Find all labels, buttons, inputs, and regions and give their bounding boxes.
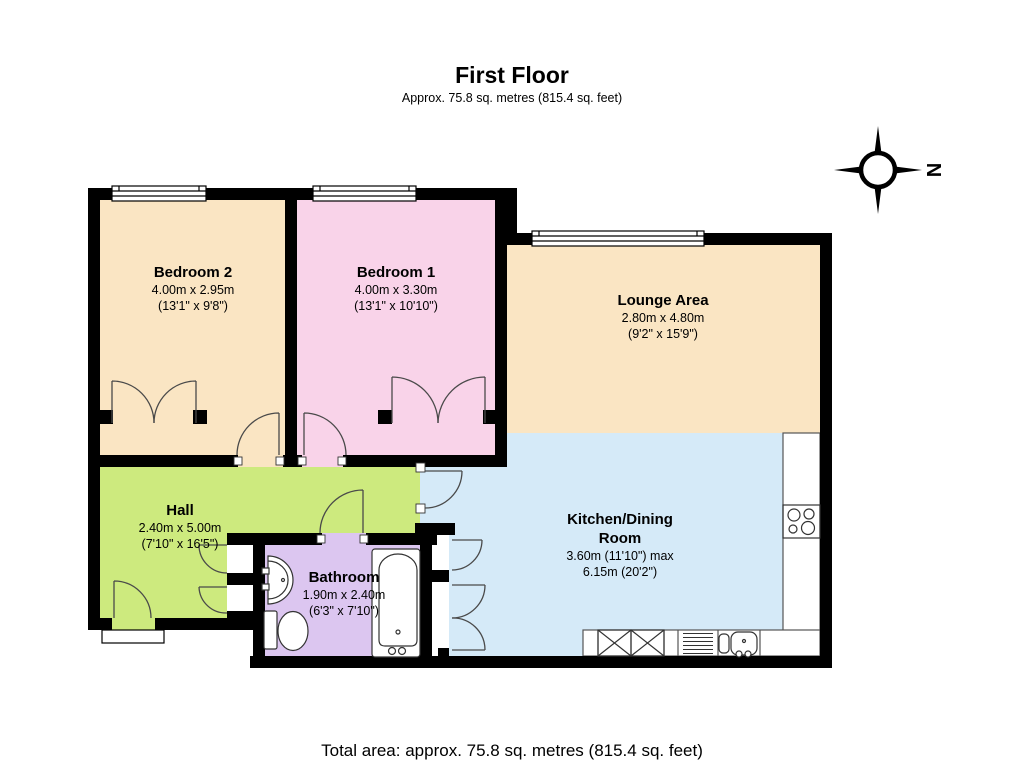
- bathtub: [372, 549, 420, 657]
- kitchen-cupboard-void: [432, 533, 449, 656]
- door-jamb: [317, 535, 325, 543]
- door-jamb: [416, 504, 425, 513]
- wardrobe-pier: [100, 410, 113, 424]
- door-jamb: [360, 535, 368, 543]
- bedroom1-floor: [297, 200, 495, 455]
- floorplan-page: First Floor Approx. 75.8 sq. metres (815…: [0, 0, 1024, 768]
- lounge-window: [532, 231, 704, 246]
- door-jamb: [298, 457, 306, 465]
- floorplan-drawing: N: [0, 0, 1024, 768]
- door-jamb: [276, 457, 284, 465]
- entry-door-opening: [112, 618, 155, 630]
- wall-segment: [285, 200, 297, 467]
- compass-hub: [861, 153, 895, 187]
- bedroom1-door-opening: [302, 455, 343, 467]
- wardrobe-pier: [378, 410, 392, 424]
- wall-segment: [88, 618, 112, 630]
- bedroom1-window: [313, 186, 416, 201]
- wardrobe-pier: [193, 410, 207, 424]
- wall-segment: [432, 570, 449, 582]
- compass: N: [834, 126, 944, 214]
- wall-segment: [88, 188, 100, 630]
- compass-north-label: N: [922, 163, 944, 177]
- wall-segment: [227, 533, 322, 545]
- bathroom-door-opening: [322, 533, 366, 545]
- wall-segment: [227, 611, 253, 620]
- entry-porch-frame: [102, 630, 164, 643]
- wall-segment: [820, 233, 832, 668]
- kitchen-floor-main: [507, 433, 820, 656]
- wall-segment: [415, 523, 455, 535]
- lounge-floor: [507, 245, 820, 433]
- counter-right: [783, 433, 820, 656]
- bedroom2-floor: [100, 200, 285, 455]
- hall-floor-top: [100, 467, 420, 533]
- kitchen-sink: [719, 632, 757, 657]
- door-jamb: [338, 457, 346, 465]
- wall-segment: [253, 533, 265, 668]
- wall-segment: [495, 200, 507, 467]
- wall-segment: [227, 573, 253, 585]
- wall-segment: [88, 455, 238, 467]
- wall-segment: [250, 656, 832, 668]
- wall-segment: [438, 648, 449, 658]
- wall-segment: [420, 533, 432, 668]
- door-jamb: [234, 457, 242, 465]
- total-area-text: Total area: approx. 75.8 sq. metres (815…: [0, 741, 1024, 761]
- door-jamb: [416, 463, 425, 472]
- toilet: [264, 611, 308, 651]
- bedroom2-window: [112, 186, 206, 201]
